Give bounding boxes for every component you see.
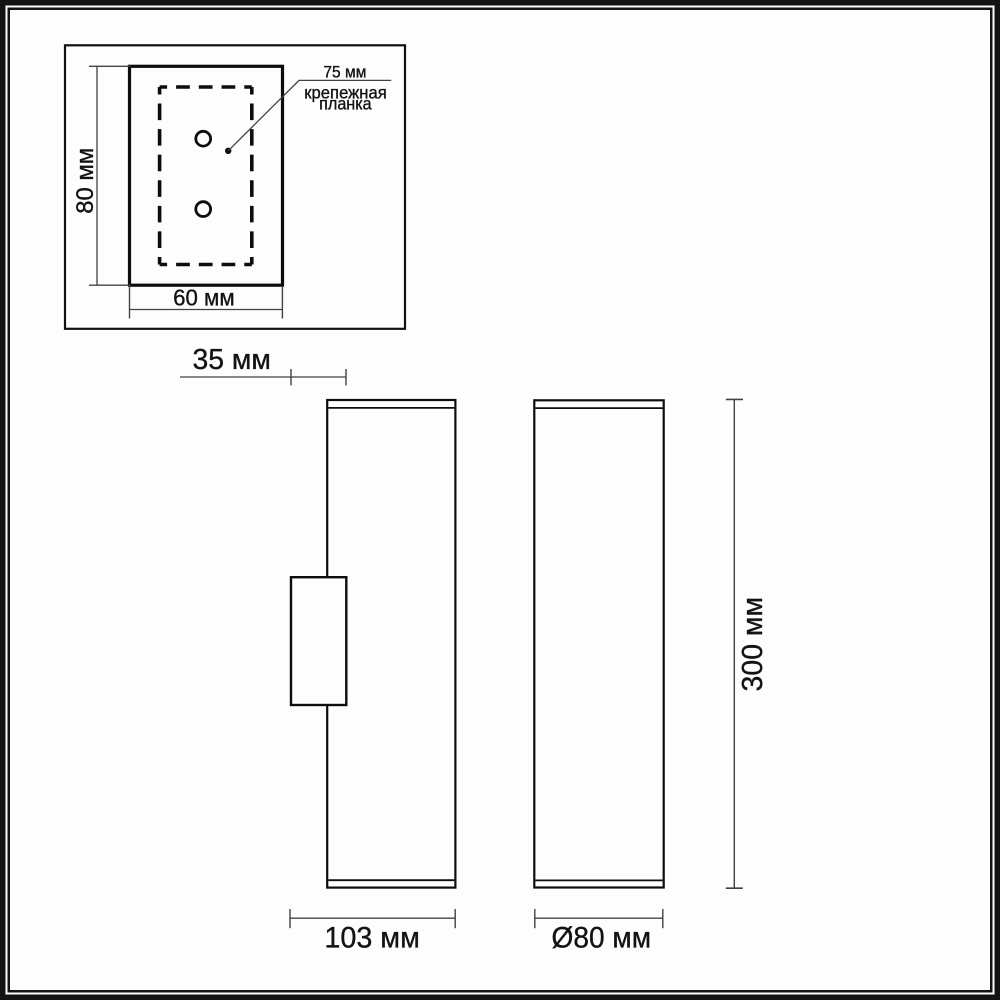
svg-text:80 мм: 80 мм (72, 148, 99, 214)
svg-text:Ø80 мм: Ø80 мм (552, 922, 652, 955)
svg-text:300 мм: 300 мм (737, 597, 769, 692)
svg-text:планка: планка (319, 94, 372, 114)
svg-text:103 мм: 103 мм (324, 922, 420, 955)
svg-text:75 мм: 75 мм (323, 64, 366, 82)
svg-text:35 мм: 35 мм (192, 344, 271, 376)
svg-text:60 мм: 60 мм (173, 284, 235, 310)
